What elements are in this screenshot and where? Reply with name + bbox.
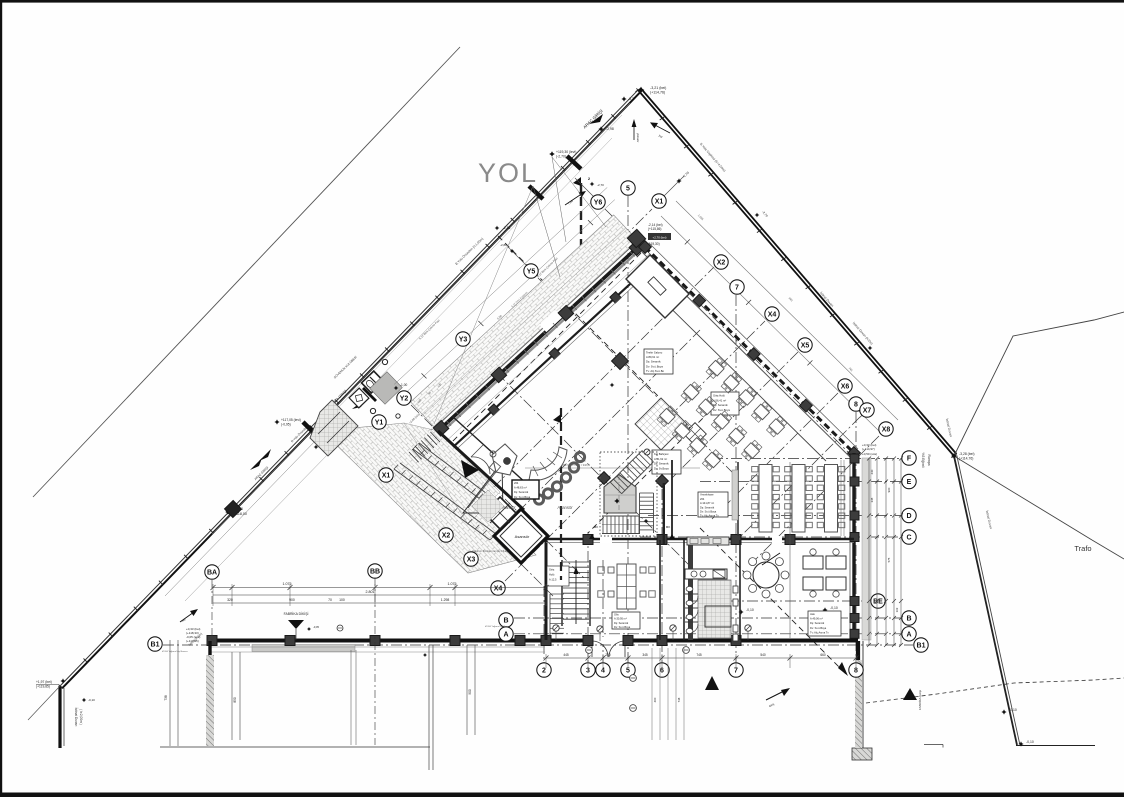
svg-text:2.801: 2.801	[366, 590, 375, 594]
svg-text:X7: X7	[863, 408, 872, 415]
svg-text:7: 7	[734, 668, 738, 675]
svg-text:Tv: Alç.Asma Tv: Tv: Alç.Asma Tv	[810, 630, 829, 634]
svg-text:Teshir Salonu: Teshir Salonu	[646, 351, 663, 355]
svg-text:1.075: 1.075	[448, 582, 457, 586]
svg-text:(+114,76): (+114,76)	[959, 457, 973, 461]
svg-text:A:141,87 m²: A:141,87 m²	[700, 501, 714, 505]
svg-text:-3,2: -3,2	[628, 97, 634, 101]
svg-text:MK: MK	[666, 525, 671, 529]
svg-text:8: 8	[854, 402, 858, 409]
svg-text:Giriş Holü: Giriş Holü	[713, 394, 725, 398]
svg-text:(+114,97): (+114,97)	[862, 447, 875, 451]
svg-text:3: 3	[586, 668, 590, 675]
svg-text:( h:2,00m ): ( h:2,00m )	[79, 709, 83, 724]
svg-text:850: 850	[233, 697, 237, 703]
svg-text:540: 540	[760, 653, 766, 657]
svg-text:X4: X4	[494, 586, 503, 593]
svg-text:(-2,70): (-2,70)	[556, 155, 566, 159]
svg-text:Trafo: Trafo	[1074, 544, 1091, 553]
svg-text:+0,50 (süs): +0,50 (süs)	[862, 452, 877, 456]
svg-text:Rampa: Rampa	[927, 455, 931, 466]
svg-text:D: D	[906, 513, 911, 520]
svg-text:7: 7	[735, 285, 739, 292]
svg-text:X3: X3	[467, 557, 476, 564]
svg-text:F: F	[907, 456, 912, 463]
svg-text:Asansör: Asansör	[557, 505, 573, 510]
svg-text:A:12,5: A:12,5	[549, 578, 557, 582]
svg-text:Dş: Seramik: Dş: Seramik	[700, 505, 715, 509]
svg-text:Y6: Y6	[594, 200, 603, 207]
svg-text:8: 8	[854, 668, 858, 675]
svg-text:900: 900	[289, 598, 295, 602]
svg-text:Y3: Y3	[459, 337, 468, 344]
svg-text:745: 745	[696, 653, 702, 657]
svg-text:A: A	[906, 631, 911, 638]
svg-text:A:30,95 m²: A:30,95 m²	[614, 617, 627, 621]
svg-text:X1: X1	[655, 199, 664, 206]
svg-text:400: 400	[653, 697, 657, 702]
svg-text:-0,10: -0,10	[88, 698, 95, 702]
svg-text:738: 738	[677, 697, 681, 702]
svg-text:Dv: Sv.ü.Boya: Dv: Sv.ü.Boya	[646, 364, 663, 368]
svg-text:Holü: Holü	[549, 573, 555, 577]
svg-text:Asansör: Asansör	[515, 534, 530, 539]
svg-text:B: B	[906, 616, 911, 623]
svg-text:Y2: Y2	[400, 396, 409, 403]
svg-text:Giriş: Giriş	[549, 568, 555, 572]
svg-text:BA: BA	[207, 570, 217, 577]
svg-text:+119,30 (levi): +119,30 (levi)	[556, 150, 576, 154]
svg-text:Dv: Sv.ü.Boya: Dv: Sv.ü.Boya	[514, 495, 531, 499]
svg-text:+1,97 (bei): +1,97 (bei)	[36, 680, 52, 684]
svg-text:B: B	[503, 618, 508, 625]
svg-text:100: 100	[339, 598, 345, 602]
svg-text:264: 264	[514, 481, 519, 485]
svg-text:Ø 200 Yağmur İniş Borusu: Ø 200 Yağmur İniş Borusu	[162, 650, 188, 653]
svg-text:Dv: Sv.ü.Boya: Dv: Sv.ü.Boya	[700, 510, 717, 514]
svg-text:5: 5	[626, 186, 630, 193]
svg-text:70: 70	[328, 598, 332, 602]
svg-text:Dv: Sv.ü.Boya: Dv: Sv.ü.Boya	[614, 625, 631, 629]
svg-text:-0,10: -0,10	[1026, 740, 1034, 744]
svg-text:-0,10: -0,10	[1009, 708, 1017, 712]
svg-text:163: 163	[895, 607, 899, 612]
svg-text:-0,05: -0,05	[313, 625, 319, 629]
svg-text:4: 4	[601, 668, 605, 675]
svg-text:A: A	[503, 632, 508, 639]
svg-text:Jale: Jale	[810, 612, 815, 616]
svg-text:+117,05 (levi): +117,05 (levi)	[281, 418, 301, 422]
svg-text:FABRİKA DİKİŞİ: FABRİKA DİKİŞİ	[284, 611, 309, 616]
svg-text:(+119,85): (+119,85)	[36, 685, 50, 689]
svg-text:250: 250	[605, 653, 611, 657]
svg-text:Ø 200 Yağmur İniş Borusu: Ø 200 Yağmur İniş Borusu	[485, 625, 511, 628]
svg-text:A:48,63 m²: A:48,63 m²	[514, 486, 527, 490]
svg-text:C: C	[906, 535, 911, 542]
svg-text:-0,10: -0,10	[746, 608, 754, 612]
svg-text:-1,00: -1,00	[400, 383, 407, 387]
svg-text:X6: X6	[841, 384, 850, 391]
svg-text:Dş: Seramik: Dş: Seramik	[810, 621, 825, 625]
svg-text:Kat Bahçesi: Kat Bahçesi	[654, 452, 669, 456]
svg-text:(-0,95): (-0,95)	[281, 423, 291, 427]
svg-text:İstinat Duvarı: İstinat Duvarı	[74, 708, 79, 727]
svg-text:Ofis: Ofis	[614, 613, 619, 617]
svg-text:Y1: Y1	[375, 420, 384, 427]
svg-text:MK: MK	[594, 525, 599, 529]
svg-text:-3,21 (bei): -3,21 (bei)	[650, 86, 666, 90]
svg-text:345: 345	[642, 653, 648, 657]
svg-text:Y5: Y5	[527, 269, 536, 276]
svg-text:660: 660	[820, 653, 826, 657]
svg-text:Dş: Seramik: Dş: Seramik	[654, 462, 669, 466]
svg-text:%3 Eğimli: %3 Eğimli	[921, 452, 925, 467]
svg-text:Yemekhane: Yemekhane	[700, 493, 714, 497]
svg-text:445: 445	[563, 653, 569, 657]
svg-text:5: 5	[626, 668, 630, 675]
svg-text:1.298: 1.298	[441, 598, 450, 602]
svg-text:-3,28 (bei): -3,28 (bei)	[959, 452, 974, 456]
svg-text:(+115,86): (+115,86)	[648, 227, 662, 231]
svg-text:900: 900	[468, 689, 472, 695]
svg-text:A:49,06 m²: A:49,06 m²	[810, 617, 823, 621]
svg-text:-2,88: -2,88	[503, 226, 510, 230]
svg-text:X1: X1	[382, 473, 391, 480]
svg-text:X2: X2	[442, 533, 451, 540]
svg-text:(+117,95): (+117,95)	[186, 639, 199, 643]
svg-text:738: 738	[164, 695, 168, 701]
svg-text:Dv: Sv.ü.Boya: Dv: Sv.ü.Boya	[810, 626, 827, 630]
svg-text:Dv: Sv.ü.Boya: Dv: Sv.ü.Boya	[713, 408, 730, 412]
svg-text:575: 575	[887, 557, 891, 562]
svg-text:345: 345	[870, 497, 874, 502]
svg-text:BB: BB	[370, 569, 380, 576]
svg-text:X8: X8	[882, 427, 891, 434]
svg-text:X4: X4	[768, 312, 777, 319]
svg-text:FABRİKA Girişi: FABRİKA Girişi	[917, 690, 922, 711]
svg-text:(+114,76): (+114,76)	[650, 91, 665, 95]
svg-text:E: E	[907, 479, 912, 486]
svg-text:-2,70: -2,70	[597, 183, 604, 187]
svg-text:Tv: Alç.Sv.ü.Bo: Tv: Alç.Sv.ü.Bo	[646, 369, 665, 373]
svg-text:320: 320	[227, 598, 233, 602]
svg-text:+2,70 (bei): +2,70 (bei)	[653, 235, 667, 239]
svg-text:Tv: Alç.Asma Tv: Tv: Alç.Asma Tv	[700, 514, 719, 518]
svg-text:Dş: Seramik: Dş: Seramik	[614, 621, 629, 625]
svg-text:1.075: 1.075	[283, 582, 292, 586]
svg-text:X2: X2	[717, 260, 726, 267]
svg-text:-2,98: -2,98	[606, 127, 614, 131]
svg-text:Dş: Seramik: Dş: Seramik	[514, 490, 529, 494]
svg-text:B1: B1	[917, 643, 926, 650]
svg-text:B1: B1	[151, 642, 160, 649]
svg-text:6: 6	[660, 668, 664, 675]
svg-text:960: 960	[887, 487, 891, 492]
svg-text:264: 264	[700, 497, 705, 501]
svg-text:Dv: Sv.Boya: Dv: Sv.Boya	[654, 466, 669, 470]
svg-text:A:89,91 m²: A:89,91 m²	[646, 355, 659, 359]
svg-text:Dş: Seramik: Dş: Seramik	[646, 360, 661, 364]
svg-text:YOL: YOL	[478, 158, 538, 188]
svg-text:yükselir: yükselir	[636, 133, 640, 143]
svg-text:230: 230	[870, 469, 874, 474]
svg-text:A:41,62 m²: A:41,62 m²	[654, 457, 667, 461]
svg-text:-2,88: -2,88	[500, 243, 507, 247]
svg-text:2: 2	[542, 668, 546, 675]
svg-text:-0,10: -0,10	[830, 606, 838, 610]
svg-text:X5: X5	[801, 343, 810, 350]
